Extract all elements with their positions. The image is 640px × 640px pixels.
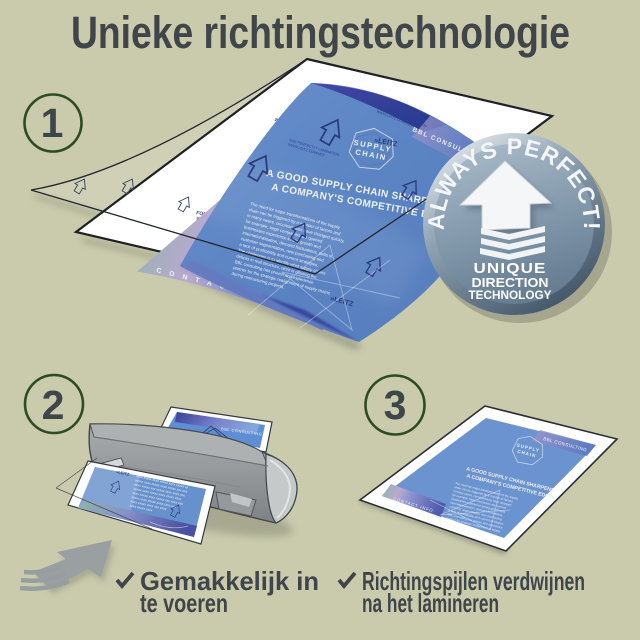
svg-text:1: 1 [41,100,64,146]
svg-text:TECHNOLOGY: TECHNOLOGY [469,288,552,302]
svg-text:UNIQUE: UNIQUE [474,260,547,277]
svg-text:3: 3 [384,382,407,428]
svg-text:te voeren: te voeren [140,588,228,618]
svg-text:na het lamineren: na het lamineren [362,588,499,618]
svg-text:2: 2 [42,382,65,428]
svg-text:Unieke richtingstechnologie: Unieke richtingstechnologie [71,7,570,58]
